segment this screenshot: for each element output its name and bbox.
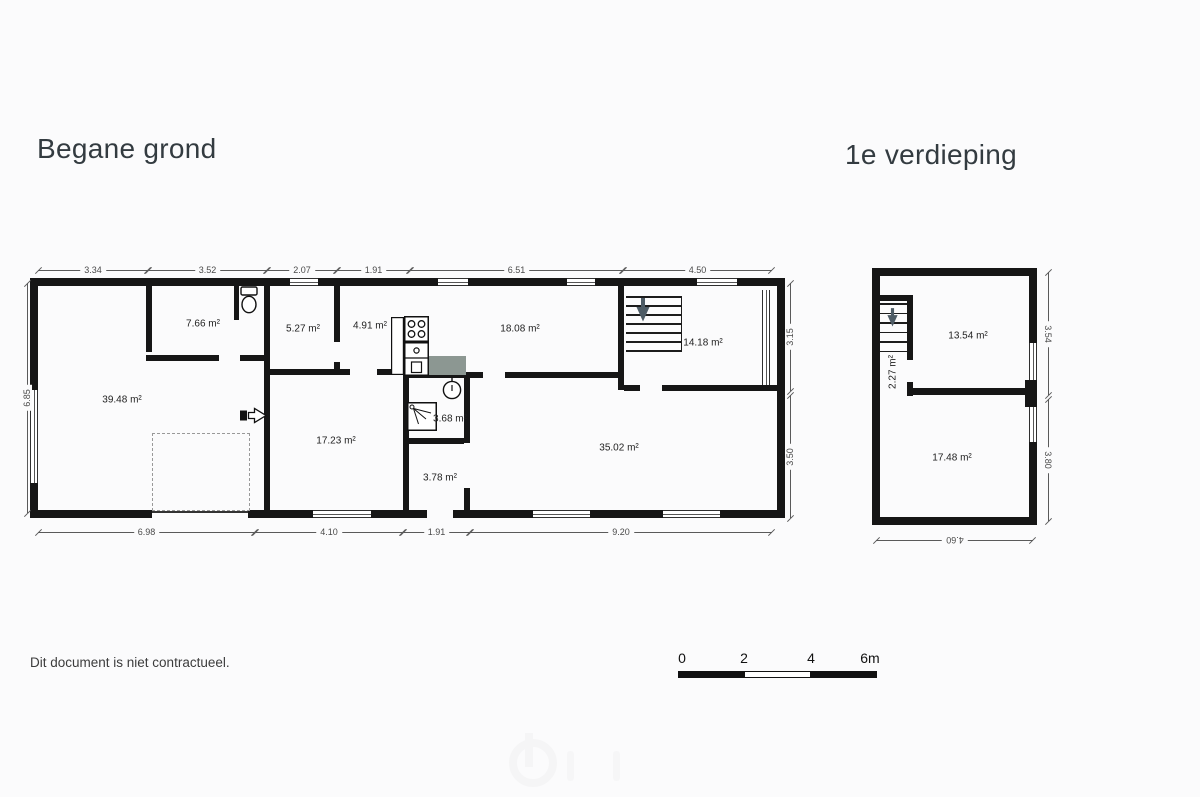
stair-step bbox=[880, 351, 907, 353]
dimension-label: 3.54 bbox=[1043, 321, 1053, 347]
dimension-line: 3.52 bbox=[148, 265, 267, 275]
dimension-line: 6.51 bbox=[410, 265, 623, 275]
sink-cabinet-icon bbox=[404, 342, 429, 376]
dimension-label: 3.50 bbox=[785, 444, 795, 470]
stair-step bbox=[626, 314, 682, 316]
wall bbox=[264, 283, 270, 510]
wall bbox=[777, 278, 785, 518]
floorplan-canvas: Begane grond 1e verdieping Dit document … bbox=[0, 0, 1200, 797]
dimension-label: 6.51 bbox=[504, 265, 530, 275]
entry-arrow-icon bbox=[240, 407, 268, 424]
dimension-line: 3.15 bbox=[785, 283, 795, 391]
stair-step bbox=[626, 296, 682, 298]
cabinet-icon bbox=[391, 317, 404, 375]
stair-step bbox=[880, 341, 907, 343]
wall bbox=[907, 388, 1029, 395]
dimension-line: 6.98 bbox=[38, 527, 255, 537]
room-area-label: 7.66 m² bbox=[186, 319, 220, 330]
dimension-line: 2.07 bbox=[267, 265, 337, 275]
wall bbox=[30, 510, 152, 518]
dimension-label: 3.80 bbox=[1043, 447, 1053, 473]
wall bbox=[624, 385, 640, 391]
dimension-label: 6.85 bbox=[22, 385, 32, 411]
dimension-line: 3.54 bbox=[1043, 272, 1053, 395]
window bbox=[290, 278, 318, 286]
dimension-line: 3.80 bbox=[1043, 399, 1053, 521]
wall bbox=[146, 355, 219, 361]
wall bbox=[662, 385, 777, 391]
dimension-line: 3.50 bbox=[785, 395, 795, 518]
stair-step bbox=[626, 305, 682, 307]
stair-step bbox=[626, 332, 682, 334]
dimension-label: 1.91 bbox=[361, 265, 387, 275]
dimension-line: 4.10 bbox=[255, 527, 403, 537]
wall bbox=[1029, 268, 1037, 343]
dimension-line: 1.91 bbox=[337, 265, 410, 275]
wall bbox=[505, 372, 618, 378]
wall bbox=[1029, 442, 1037, 525]
stair-rail bbox=[681, 296, 683, 352]
dashed-outline bbox=[152, 433, 250, 511]
stair-step bbox=[626, 341, 682, 343]
dimension-line: 6.85 bbox=[22, 283, 32, 513]
opening-line bbox=[152, 511, 248, 513]
window bbox=[438, 278, 468, 286]
wall bbox=[872, 517, 1037, 525]
wall bbox=[590, 510, 663, 518]
window bbox=[1029, 343, 1037, 380]
toilet-icon bbox=[239, 286, 259, 314]
wall bbox=[270, 369, 350, 375]
stair-direction-arrow-icon bbox=[636, 298, 650, 322]
room-area-label: 35.02 m² bbox=[599, 443, 638, 454]
dimension-label: 2.07 bbox=[289, 265, 315, 275]
wall bbox=[468, 278, 567, 286]
wall bbox=[146, 283, 152, 352]
stair-step bbox=[626, 323, 682, 325]
dimension-label: 3.52 bbox=[195, 265, 221, 275]
stair-step bbox=[880, 303, 907, 305]
scale-label-0: 0 bbox=[678, 650, 686, 666]
scale-label-4: 4 bbox=[807, 650, 815, 666]
wall bbox=[872, 268, 880, 525]
stove-icon bbox=[404, 316, 429, 342]
stair-direction-arrow-icon bbox=[887, 308, 898, 327]
scale-bar-segment bbox=[811, 671, 877, 678]
dimension-label: 1.91 bbox=[424, 527, 450, 537]
window bbox=[1029, 407, 1037, 442]
dimension-line: 3.34 bbox=[38, 265, 148, 275]
window bbox=[313, 510, 371, 518]
dimension-line: 1.91 bbox=[403, 527, 470, 537]
dimension-label: 4.50 bbox=[685, 265, 711, 275]
dimension-line: 4.50 bbox=[623, 265, 772, 275]
scale-bar: 0 2 4 6m bbox=[678, 650, 878, 680]
scale-bar-segment bbox=[678, 671, 744, 678]
wall bbox=[595, 278, 697, 286]
window bbox=[567, 278, 595, 286]
wall bbox=[453, 510, 533, 518]
first-floor-title: 1e verdieping bbox=[845, 139, 1017, 171]
room-area-label: 17.23 m² bbox=[316, 436, 355, 447]
scale-label-2: 2 bbox=[740, 650, 748, 666]
disclaimer-text: Dit document is niet contractueel. bbox=[30, 655, 230, 670]
scale-bar-segment bbox=[744, 671, 811, 678]
room-area-label: 14.18 m² bbox=[683, 338, 722, 349]
wall bbox=[30, 278, 290, 286]
watermark-logo bbox=[505, 733, 695, 797]
wall bbox=[872, 268, 1037, 276]
wall bbox=[720, 510, 785, 518]
room-area-label: 2.27 m² bbox=[888, 355, 899, 389]
stair-step bbox=[626, 350, 682, 352]
dimension-label: 9.20 bbox=[608, 527, 634, 537]
room-area-label: 17.48 m² bbox=[932, 453, 971, 464]
dimension-line: 9.20 bbox=[470, 527, 772, 537]
window bbox=[663, 510, 720, 518]
dimension-label: 3.15 bbox=[785, 324, 795, 350]
room-area-label: 4.91 m² bbox=[353, 321, 387, 332]
dimension-label: 6.98 bbox=[134, 527, 160, 537]
scale-label-6m: 6m bbox=[860, 650, 879, 666]
dimension-label: 3.34 bbox=[80, 265, 106, 275]
room-area-label: 39.48 m² bbox=[102, 395, 141, 406]
wall bbox=[409, 438, 464, 444]
wall bbox=[907, 295, 913, 360]
window bbox=[697, 278, 737, 286]
room-area-label: 13.54 m² bbox=[948, 331, 987, 342]
room-area-label: 3.78 m² bbox=[423, 473, 457, 484]
room-area-label: 5.27 m² bbox=[286, 324, 320, 335]
wall bbox=[371, 510, 427, 518]
wall bbox=[464, 378, 470, 443]
wall bbox=[464, 488, 470, 510]
wall bbox=[248, 510, 313, 518]
dimension-label: 4.10 bbox=[316, 527, 342, 537]
kitchen-counter bbox=[429, 356, 466, 375]
wall bbox=[618, 283, 624, 390]
window bbox=[533, 510, 590, 518]
dimension-line: 4.60 bbox=[876, 535, 1033, 545]
ground-floor-title: Begane grond bbox=[37, 133, 217, 165]
room-area-label: 18.08 m² bbox=[500, 324, 539, 335]
room-area-label: 3.68 m² bbox=[433, 414, 467, 425]
dimension-label: 4.60 bbox=[942, 535, 968, 545]
stair-step bbox=[880, 332, 907, 334]
wall bbox=[334, 283, 340, 342]
window bbox=[762, 290, 770, 385]
basin-icon bbox=[441, 377, 463, 400]
